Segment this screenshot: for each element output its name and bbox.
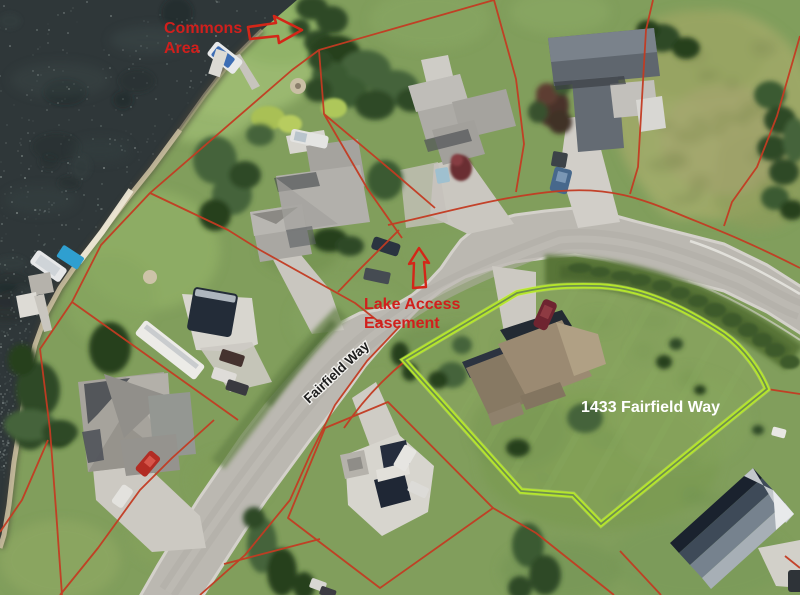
svg-text:Lake Access: Lake Access (364, 296, 460, 313)
svg-text:Area: Area (164, 40, 200, 57)
svg-text:Easement: Easement (364, 315, 440, 332)
svg-text:1433 Fairfield Way: 1433 Fairfield Way (581, 399, 720, 416)
svg-text:Commons: Commons (164, 20, 242, 37)
